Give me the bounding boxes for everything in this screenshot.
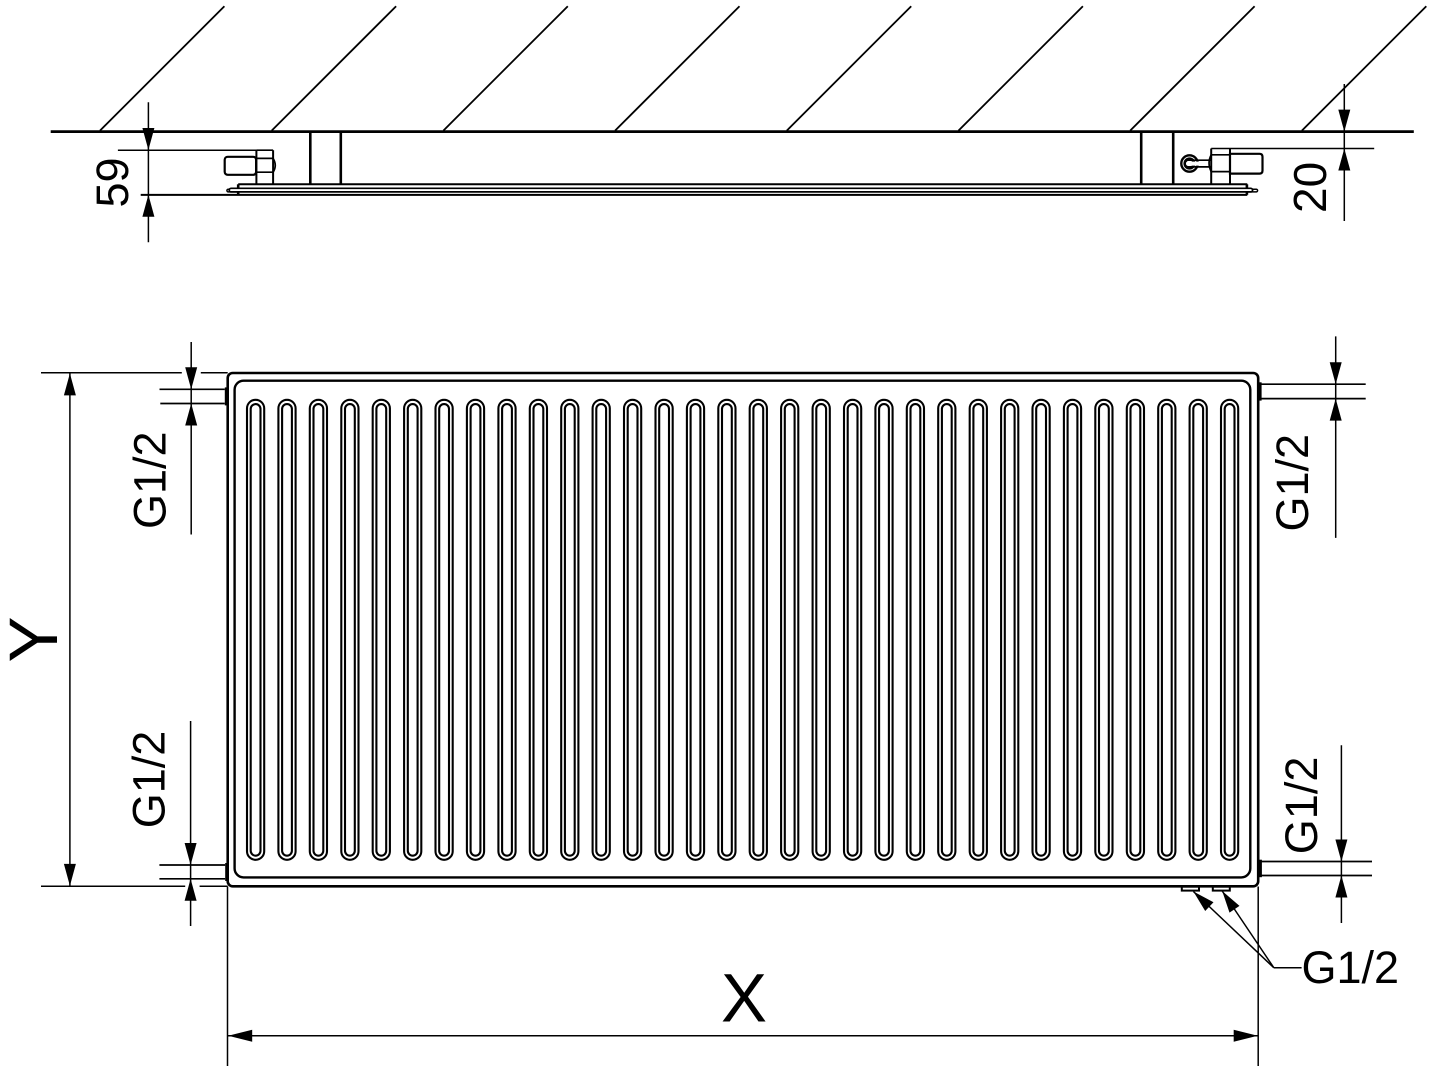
svg-text:G1/2: G1/2 [1276,757,1327,855]
svg-text:G1/2: G1/2 [1267,434,1318,532]
svg-text:Y: Y [0,616,72,662]
svg-text:59: 59 [87,157,138,207]
svg-text:X: X [721,960,767,1037]
svg-text:G1/2: G1/2 [1302,942,1400,993]
svg-text:G1/2: G1/2 [124,731,175,829]
svg-text:20: 20 [1284,162,1336,213]
svg-text:G1/2: G1/2 [125,431,176,529]
